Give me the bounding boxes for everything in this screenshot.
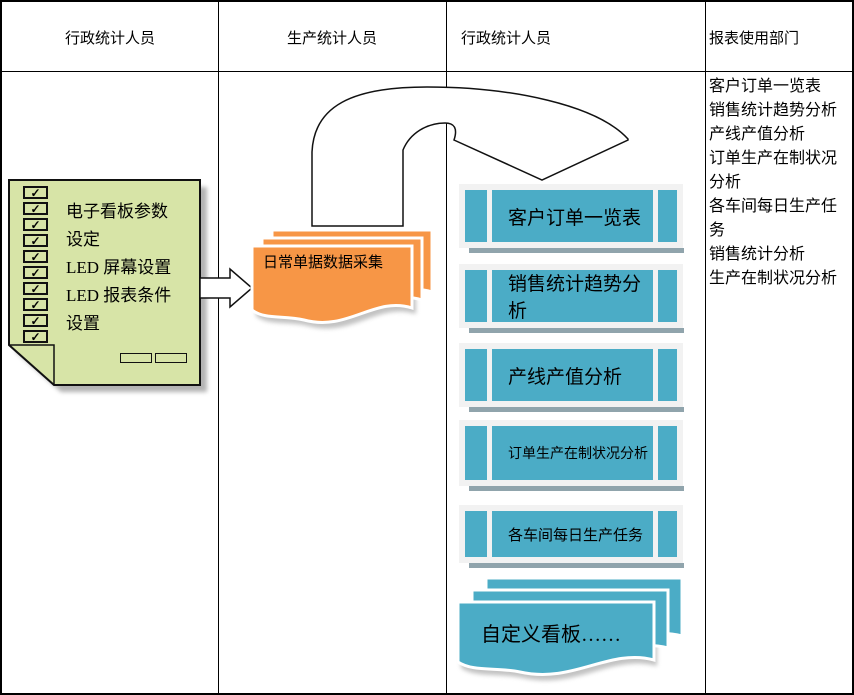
header-separator <box>2 71 852 72</box>
note-line: LED 报表条件 <box>66 282 171 310</box>
report-list: 客户订单一览表 销售统计趋势分析 产线产值分析 订单生产在制状况分析 各车间每日… <box>709 75 851 291</box>
note-checkbox-column: ✓ ✓ ✓ ✓ ✓ ✓ ✓ ✓ ✓ ✓ <box>23 186 48 346</box>
bar-shadow <box>469 407 684 412</box>
lane-header-admin-stats-1: 行政统计人员 <box>2 27 218 48</box>
report-list-item: 销售统计趋势分析 <box>709 99 851 123</box>
bar-shadow <box>469 248 684 253</box>
bar-cap-right <box>658 511 677 557</box>
checkbox-icon: ✓ <box>23 218 48 231</box>
bar-label: 产线产值分析 <box>508 362 622 389</box>
kanban-bar: 产线产值分析 <box>459 343 683 407</box>
teal-doc-label: 自定义看板…… <box>481 618 661 647</box>
kanban-bar: 订单生产在制状况分析 <box>459 420 683 486</box>
note-line: 电子看板参数 <box>66 198 171 226</box>
note-text: 电子看板参数 设定 LED 屏幕设置 LED 报表条件 设置 <box>66 198 171 338</box>
checkbox-icon: ✓ <box>23 202 48 215</box>
lane-divider <box>705 2 706 693</box>
bar-label: 销售统计趋势分析 <box>508 269 653 323</box>
kanban-bar: 销售统计趋势分析 <box>459 264 683 328</box>
bar-cap-right <box>658 190 677 242</box>
checkbox-icon: ✓ <box>23 186 48 199</box>
report-list-item: 生产在制状况分析 <box>709 267 851 291</box>
document-stack-orange <box>246 222 451 337</box>
bar-shadow <box>469 328 684 333</box>
report-list-item: 订单生产在制状况分析 <box>709 147 851 195</box>
bar-label: 各车间每日生产任务 <box>508 524 643 545</box>
checkbox-icon: ✓ <box>23 314 48 327</box>
bar-cap-left <box>465 511 487 557</box>
lane-header-report-users: 报表使用部门 <box>705 27 854 48</box>
bar-cap-left <box>465 270 487 322</box>
checkbox-icon: ✓ <box>23 298 48 311</box>
report-list-item: 产线产值分析 <box>709 123 851 147</box>
checkbox-icon: ✓ <box>23 234 48 247</box>
bar-shadow <box>469 486 684 491</box>
checkbox-icon: ✓ <box>23 330 48 343</box>
report-list-item: 客户订单一览表 <box>709 75 851 99</box>
report-list-item: 各车间每日生产任务 <box>709 195 851 243</box>
bar-cap-right <box>658 270 677 322</box>
bar-label: 订单生产在制状况分析 <box>508 443 648 463</box>
note-line: 设定 <box>66 226 171 254</box>
bar-cap-left <box>465 349 487 401</box>
note-slot <box>120 353 152 363</box>
checkbox-icon: ✓ <box>23 250 48 263</box>
lane-header-production-stats: 生产统计人员 <box>218 27 446 48</box>
bar-cap-left <box>465 190 487 242</box>
note-slot <box>155 353 187 363</box>
bar-label: 客户订单一览表 <box>508 203 641 230</box>
kanban-bar: 客户订单一览表 <box>459 184 683 248</box>
bar-shadow <box>469 563 684 568</box>
bar-cap-left <box>465 426 487 480</box>
checkbox-icon: ✓ <box>23 282 48 295</box>
swimlane-diagram: 行政统计人员 生产统计人员 行政统计人员 报表使用部门 ✓ ✓ ✓ ✓ ✓ ✓ … <box>0 0 854 695</box>
bar-cap-right <box>658 426 677 480</box>
kanban-bar: 各车间每日生产任务 <box>459 505 683 563</box>
lane-header-admin-stats-2: 行政统计人员 <box>446 27 705 48</box>
orange-doc-label: 日常单据数据采集 <box>263 251 413 272</box>
bar-cap-right <box>658 349 677 401</box>
note-line: 设置 <box>66 310 171 338</box>
note-line: LED 屏幕设置 <box>66 254 171 282</box>
checkbox-icon: ✓ <box>23 266 48 279</box>
report-list-item: 销售统计分析 <box>709 243 851 267</box>
